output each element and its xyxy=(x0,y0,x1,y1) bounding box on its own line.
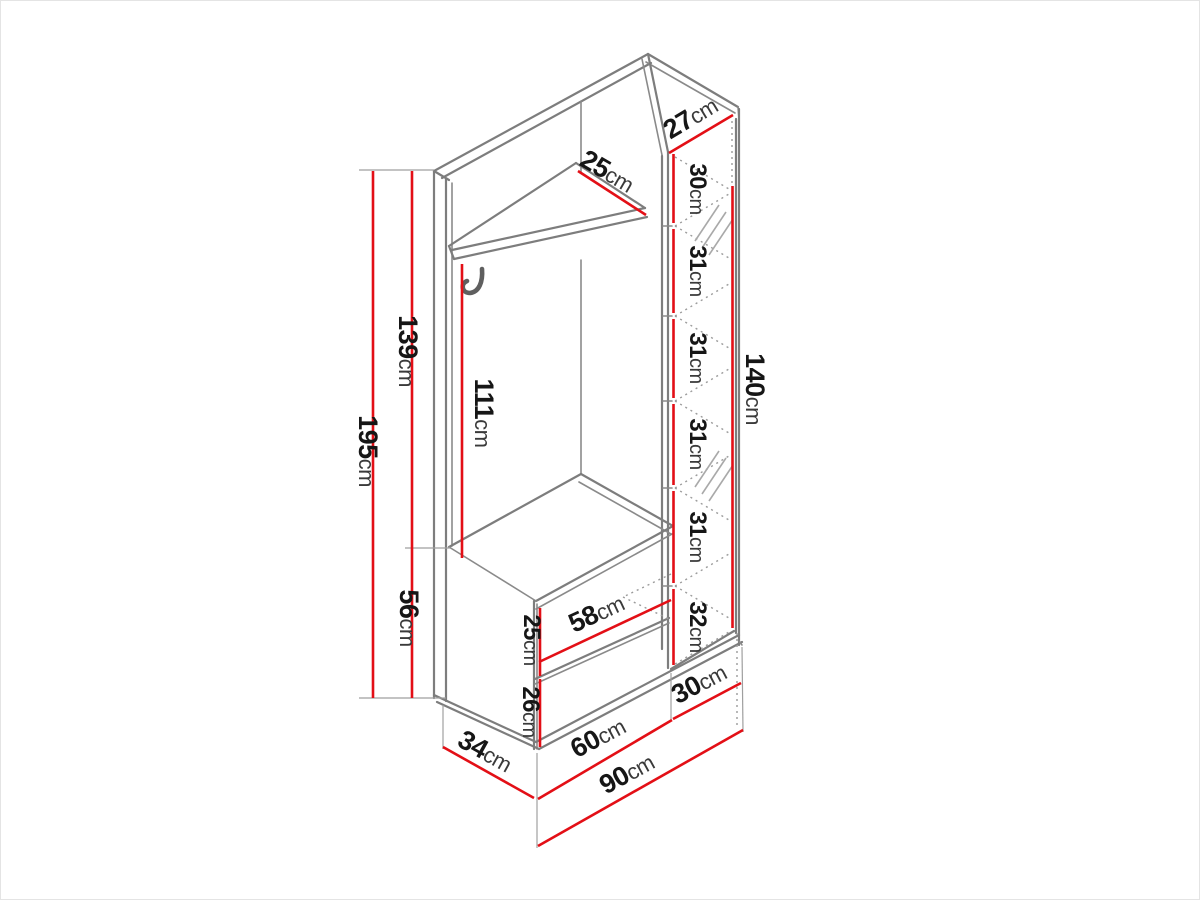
label-drawer-height: 25cm xyxy=(518,614,545,665)
label-top-depth: 27cm xyxy=(658,90,723,145)
diagram-svg: 195cm 139cm 56cm 111cm 25cm 27cm 30cm 31… xyxy=(1,1,1200,900)
label-col-seg3: 31cm xyxy=(684,332,711,383)
label-total-width: 90cm xyxy=(594,746,659,800)
label-base-height: 26cm xyxy=(517,686,544,737)
furniture-dimension-diagram: 195cm 139cm 56cm 111cm 25cm 27cm 30cm 31… xyxy=(0,0,1200,900)
bench-seat xyxy=(449,474,673,609)
label-upper-height: 139cm xyxy=(393,315,423,387)
label-hanging-height: 111cm xyxy=(469,379,499,448)
dim-line-total-width xyxy=(538,730,743,846)
label-col-seg6: 32cm xyxy=(684,601,711,652)
label-lower-height: 56cm xyxy=(394,589,424,646)
label-total-height: 195cm xyxy=(353,415,383,487)
label-col-seg2: 31cm xyxy=(684,245,711,296)
label-mirror-height: 140cm xyxy=(740,353,770,425)
label-col-seg4: 31cm xyxy=(684,418,711,469)
label-col-seg5: 31cm xyxy=(684,511,711,562)
dimension-labels: 195cm 139cm 56cm 111cm 25cm 27cm 30cm 31… xyxy=(353,90,770,801)
dimension-lines xyxy=(373,115,743,846)
label-col-seg1: 30cm xyxy=(684,163,711,214)
coat-hook-icon xyxy=(463,269,482,293)
label-drawer-width: 58cm xyxy=(564,587,629,638)
